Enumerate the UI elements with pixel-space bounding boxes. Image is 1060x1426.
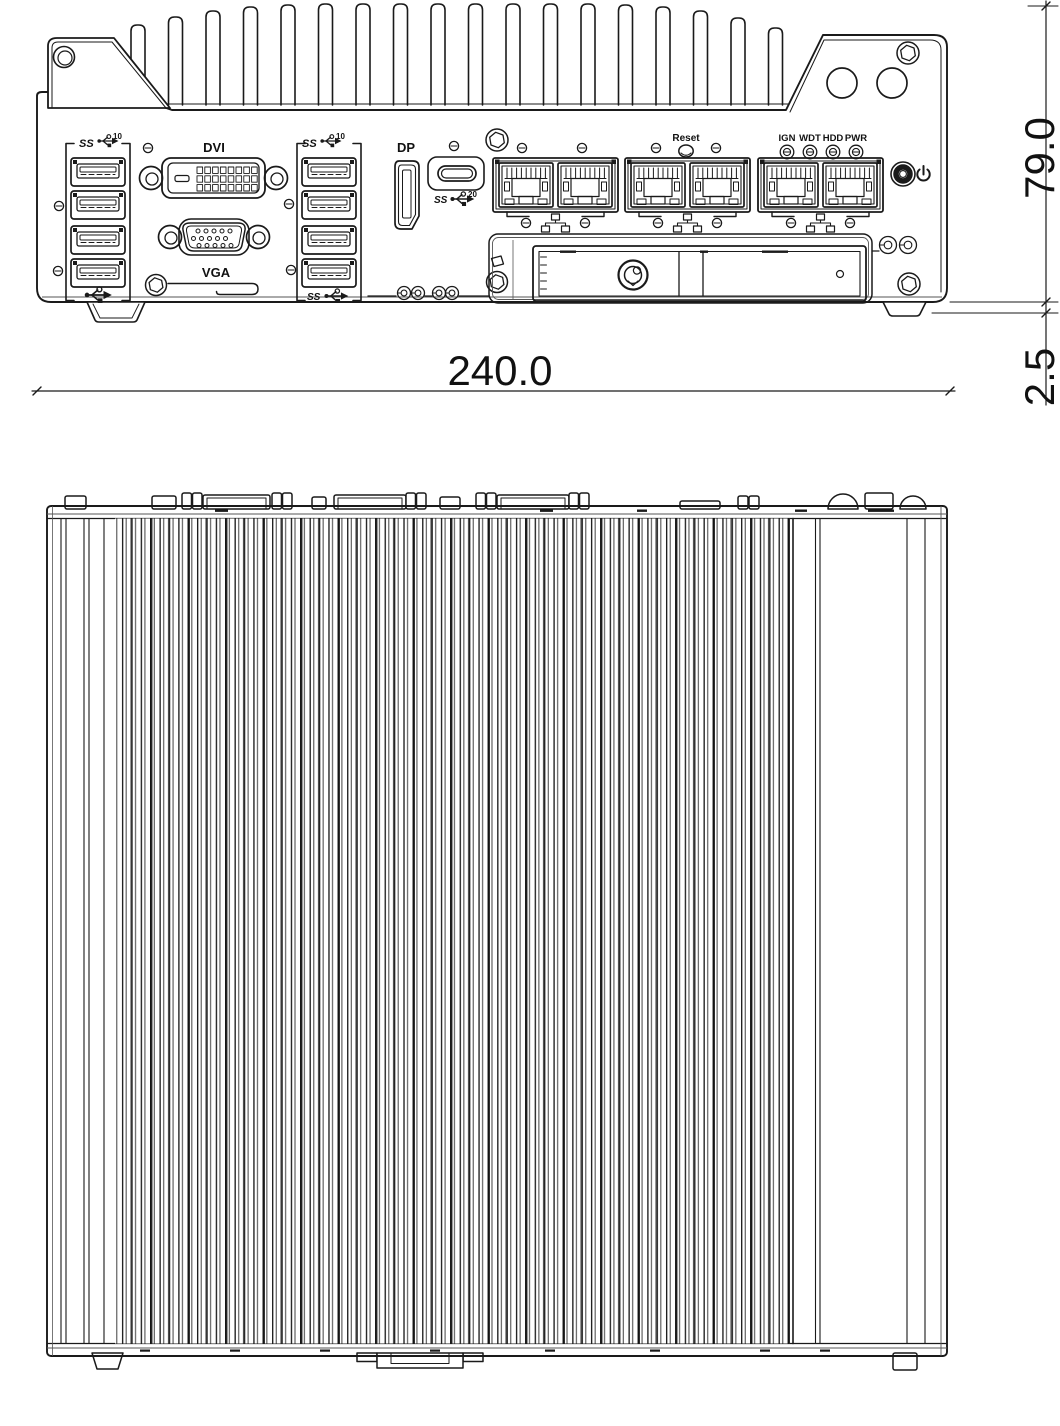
hex-screw-icon: [146, 275, 167, 296]
vga-pin: [192, 237, 196, 241]
dvi-pin: [197, 176, 203, 182]
screw-icon: [845, 218, 854, 227]
dvi-pin: [252, 185, 258, 191]
power-button[interactable]: [891, 162, 915, 186]
dvi-pin: [205, 167, 211, 173]
emi-spiral-clip-icon: [412, 287, 425, 300]
edge-dash: [820, 1350, 830, 1352]
vga-pin: [200, 237, 204, 241]
connector-bump: [152, 496, 176, 509]
heatsink-fin: [544, 4, 558, 105]
led-indicator-icon: [849, 145, 863, 159]
heatsink-fin: [656, 7, 670, 105]
dvi-pin: [252, 176, 258, 182]
dvi-pin: [220, 185, 226, 191]
lan-network-icon: [807, 214, 835, 232]
ign-led-label: IGN: [779, 133, 796, 144]
left-mounting-ear: [48, 38, 170, 108]
heatsink-fin: [506, 4, 520, 105]
ss-badge: SS: [302, 138, 317, 150]
vga-pin: [216, 237, 220, 241]
chassis-foot-left: [87, 302, 145, 322]
ethernet-port[interactable]: [499, 163, 553, 207]
screw-icon: [521, 218, 530, 227]
heatsink-fin: [169, 17, 183, 105]
usb-a-port[interactable]: [71, 226, 125, 254]
connector-bump: [312, 497, 326, 509]
ss-badge: SS: [434, 195, 448, 206]
tray-latch-mark: [492, 256, 504, 267]
dvi-pin: [213, 167, 219, 173]
hex-screw-icon: [898, 273, 920, 295]
usb-a-port[interactable]: [302, 158, 356, 186]
heatsink-fin: [281, 5, 295, 105]
emi-gasket: [168, 284, 258, 295]
screw-icon: [143, 143, 152, 152]
heatsink-fin: [694, 11, 708, 105]
edge-dash: [230, 1350, 240, 1352]
edge-dash: [430, 1350, 440, 1352]
emi-spiral-clip-icon: [398, 287, 411, 300]
drive-tray[interactable]: [489, 234, 872, 303]
dvi-pin: [213, 176, 219, 182]
chassis-foot-right: [883, 302, 926, 316]
heatsink-fin: [581, 4, 595, 105]
heatsink-fin: [319, 4, 333, 105]
ethernet-port[interactable]: [558, 163, 612, 207]
dimension-width: 240.0: [447, 347, 552, 394]
dvi-pin: [236, 185, 242, 191]
usb-c-port: [428, 157, 484, 190]
ethernet-port-pair: [625, 158, 750, 232]
connector-bump: [738, 496, 748, 509]
embedded-computer-drawing: 240.0 79.0 2.5 DVI VGA DP Reset IGN WDT …: [0, 0, 1060, 1426]
ethernet-port-pair: [758, 158, 883, 232]
usb2-trident-icon: [85, 287, 112, 303]
dvi-pin: [228, 176, 234, 182]
usb3-trident-icon: [324, 289, 348, 303]
bracket-mark: [122, 144, 130, 301]
dvi-pin: [244, 185, 250, 191]
heatsink-fin: [244, 7, 258, 105]
hex-screw-icon: [486, 129, 508, 151]
emi-spiral-clip-icon: [880, 237, 897, 254]
edge-dash: [868, 510, 894, 512]
heatsink-fin: [394, 4, 408, 105]
top-view: [47, 493, 947, 1370]
screw-icon: [286, 265, 295, 274]
heatsink-fin: [356, 4, 370, 105]
connector-bump: [680, 501, 720, 509]
gen10-badge: 10: [113, 132, 122, 141]
vga-pin: [228, 229, 232, 233]
vga-pin: [212, 229, 216, 233]
vga-pin: [220, 229, 224, 233]
screw-icon: [651, 143, 660, 152]
jack-post-screw-icon: [159, 226, 182, 249]
bracket-mark: [353, 144, 361, 301]
usb-a-port[interactable]: [71, 191, 125, 219]
dvi-blade-slot: [175, 176, 189, 182]
vga-pin: [205, 244, 209, 248]
dvi-pin: [220, 167, 226, 173]
tray-recess: [489, 234, 872, 303]
connector-bump: [440, 497, 460, 509]
screw-icon: [653, 218, 662, 227]
technical-drawing-page: 240.0 79.0 2.5 DVI VGA DP Reset IGN WDT …: [0, 0, 1060, 1426]
vga-pin: [229, 244, 233, 248]
dimension-height: 79.0: [1016, 117, 1060, 199]
screw-icon: [580, 218, 589, 227]
edge-dash: [795, 510, 807, 512]
edge-dash: [637, 510, 647, 512]
screw-icon: [712, 218, 721, 227]
screw-icon: [711, 143, 720, 152]
led-indicator-icon: [803, 145, 817, 159]
edge-dash: [215, 510, 228, 512]
vga-pin: [224, 237, 228, 241]
dvi-pin: [228, 185, 234, 191]
ss-badge: SS: [79, 138, 94, 150]
emi-spiral-clip-icon: [446, 287, 459, 300]
wdt-led-label: WDT: [799, 133, 821, 144]
power-icon: [917, 166, 929, 181]
vga-pin: [197, 244, 201, 248]
emi-spiral-clip-icon: [433, 287, 446, 300]
jack-post-screw-icon: [247, 226, 270, 249]
usb-port-group: [66, 144, 130, 301]
ethernet-port[interactable]: [764, 163, 818, 207]
tray-body[interactable]: [533, 246, 866, 301]
front-panel-view: [37, 4, 947, 322]
dvi-connector: [162, 158, 265, 198]
vga-pin: [213, 244, 217, 248]
screw-icon: [53, 266, 62, 275]
screw-icon: [517, 143, 526, 152]
usb-a-port[interactable]: [302, 226, 356, 254]
displayport-connector: [395, 161, 419, 229]
dvi-pin: [197, 185, 203, 191]
vga-pin: [221, 244, 225, 248]
ethernet-port[interactable]: [823, 163, 877, 207]
lan-network-icon: [542, 214, 570, 232]
usb-a-port[interactable]: [302, 259, 356, 287]
heatsink-fin: [619, 5, 633, 105]
dvi-pin: [213, 185, 219, 191]
led-indicator-icon: [826, 145, 840, 159]
dvi-pin: [236, 167, 242, 173]
lan-network-icon: [674, 214, 702, 232]
dvi-pin: [197, 167, 203, 173]
edge-dash: [545, 1350, 555, 1352]
usb-a-port[interactable]: [71, 158, 125, 186]
dvi-pin: [205, 185, 211, 191]
vga-label: VGA: [202, 265, 231, 280]
dimension-foot: 2.5: [1016, 348, 1060, 406]
screw-icon: [786, 218, 795, 227]
connector-bump: [749, 496, 759, 509]
connector-bump: [463, 1353, 483, 1362]
antenna-hole: [877, 68, 907, 98]
hex-screw-icon: [897, 42, 919, 64]
reset-label: Reset: [672, 133, 700, 144]
vga-connector: [179, 219, 249, 255]
dvi-pin: [244, 167, 250, 173]
edge-dash: [540, 510, 553, 512]
jack-post-screw-icon: [140, 167, 163, 190]
screw-icon: [577, 143, 586, 152]
screw-icon: [449, 141, 458, 150]
antenna-hole: [827, 68, 857, 98]
ethernet-port-pair: [493, 158, 618, 232]
dvi-pin: [205, 176, 211, 182]
ethernet-port[interactable]: [631, 163, 685, 207]
dvi-pin: [244, 176, 250, 182]
reset-button[interactable]: [679, 145, 693, 157]
led-indicator-icon: [780, 145, 794, 159]
edge-dash: [320, 1350, 330, 1352]
screw-icon: [284, 199, 293, 208]
emi-spiral-clip-icon: [900, 237, 917, 254]
dvi-pin: [236, 176, 242, 182]
screw-icon: [54, 201, 63, 210]
dvi-pin: [252, 167, 258, 173]
edge-dash: [650, 1350, 660, 1352]
connector-bump: [357, 1353, 377, 1362]
vga-pin: [204, 229, 208, 233]
heatsink-fin: [431, 4, 445, 105]
heatsink-fins: [131, 4, 783, 105]
heatsink-fin: [469, 4, 483, 105]
dp-label: DP: [397, 140, 415, 155]
dvi-pin: [228, 167, 234, 173]
dvi-pin: [220, 176, 226, 182]
usb-a-port[interactable]: [71, 259, 125, 287]
tray-screw-hole: [837, 271, 844, 278]
ss-badge: SS: [307, 292, 321, 303]
vga-pin: [208, 237, 212, 241]
usb-port-group: [297, 144, 361, 301]
bracket-mark: [297, 144, 305, 301]
gen20-badge: 20: [468, 190, 477, 199]
usb-a-port[interactable]: [302, 191, 356, 219]
tray-keylock[interactable]: [619, 261, 648, 290]
hdd-led-label: HDD: [823, 133, 844, 144]
dvi-label: DVI: [203, 140, 225, 155]
edge-dash: [140, 1350, 150, 1352]
jack-post-screw-icon: [265, 167, 288, 190]
edge-dash: [760, 1350, 770, 1352]
heatsink-fin: [731, 18, 745, 105]
pwr-led-label: PWR: [845, 133, 867, 144]
bracket-mark: [66, 144, 74, 301]
connector-bump: [65, 496, 86, 509]
antenna-dome-bump: [900, 496, 926, 509]
heatsink-fin: [206, 11, 220, 105]
vga-pin: [196, 229, 200, 233]
ethernet-port[interactable]: [690, 163, 744, 207]
heatsink-fin: [769, 28, 783, 105]
gen10-badge: 10: [336, 132, 345, 141]
